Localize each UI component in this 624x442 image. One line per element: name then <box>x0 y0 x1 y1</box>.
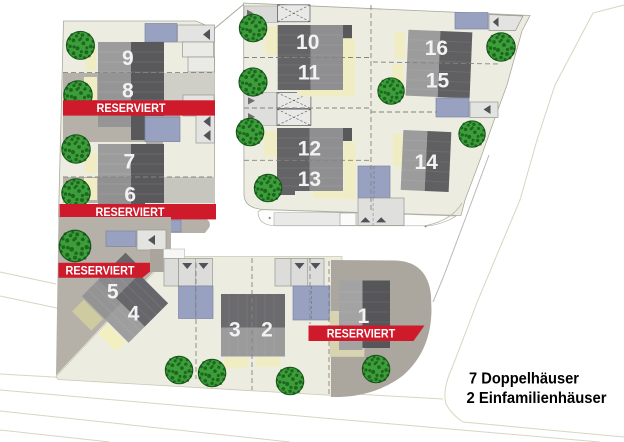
svg-text:2: 2 <box>261 318 273 341</box>
svg-text:10: 10 <box>296 31 319 54</box>
svg-text:13: 13 <box>298 168 321 191</box>
svg-text:11: 11 <box>298 62 321 85</box>
svg-text:14: 14 <box>415 151 439 174</box>
svg-text:3: 3 <box>229 318 241 341</box>
svg-text:7 Doppelhäuser: 7 Doppelhäuser <box>469 371 579 388</box>
svg-text:RESERVIERT: RESERVIERT <box>66 263 136 277</box>
svg-text:1: 1 <box>358 305 370 328</box>
svg-text:16: 16 <box>425 37 448 60</box>
svg-text:5: 5 <box>107 281 119 304</box>
svg-text:2 Einfamilienhäuser: 2 Einfamilienhäuser <box>467 390 607 407</box>
svg-text:RESERVIERT: RESERVIERT <box>97 101 167 115</box>
svg-text:4: 4 <box>128 302 140 325</box>
svg-text:8: 8 <box>122 79 134 102</box>
svg-text:12: 12 <box>298 138 321 161</box>
svg-text:RESERVIERT: RESERVIERT <box>96 205 166 219</box>
svg-text:15: 15 <box>426 70 450 93</box>
svg-text:RESERVIERT: RESERVIERT <box>327 326 396 340</box>
svg-text:6: 6 <box>124 184 136 207</box>
svg-text:7: 7 <box>124 150 136 173</box>
svg-text:9: 9 <box>122 47 134 70</box>
